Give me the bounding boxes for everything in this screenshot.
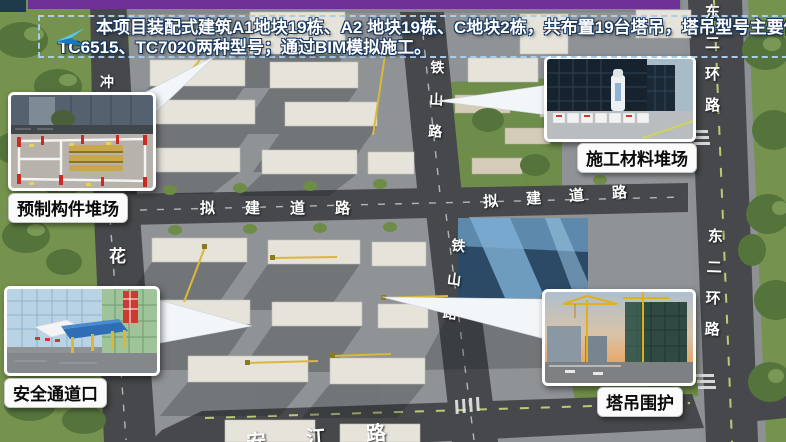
banner-text-line1: 本项目装配式建筑A1地块19栋、A2 地块19栋、C地块2栋，共布置19台塔吊，… [40,18,786,38]
road-label-planned-road-left: 拟建道路 [200,197,380,218]
slide-canvas: 东二环路 东二环路 铁山路 铁山路 拟建道路 拟建道路 花 冲 安江路 [0,0,786,442]
project-summary-banner: 本项目装配式建筑A1地块19栋、A2 地块19栋、C地块2栋，共布置19台塔吊，… [38,15,786,58]
callout-label-crane-enclosure: 塔吊围护 [597,387,683,417]
glass-building [458,218,588,298]
inset-image-material-yard [544,56,696,142]
slide-accent-bar [28,0,680,9]
inset-image-crane-enclosure [542,289,696,386]
map-dark-corner [0,0,26,12]
road-label-chong-partial: 冲 [100,72,114,92]
callout-label-precast-yard: 预制构件堆场 [8,193,128,223]
road-label-ring-road-lower: 东二环路 [700,228,725,353]
road-label-hua-partial: 花 [109,242,126,267]
road-label-tieshan-upper: 铁山路 [424,60,447,157]
inset-image-safety-passage [4,286,160,376]
paper-plane-arrow-icon [54,25,88,49]
inset-image-precast-yard [8,92,156,191]
callout-label-material-yard: 施工材料堆场 [577,143,697,173]
callout-label-safety-passage: 安全通道口 [4,378,107,408]
banner-text-line2: TC6515、TC7020两种型号；通过BIM模拟施工。 [40,38,786,58]
